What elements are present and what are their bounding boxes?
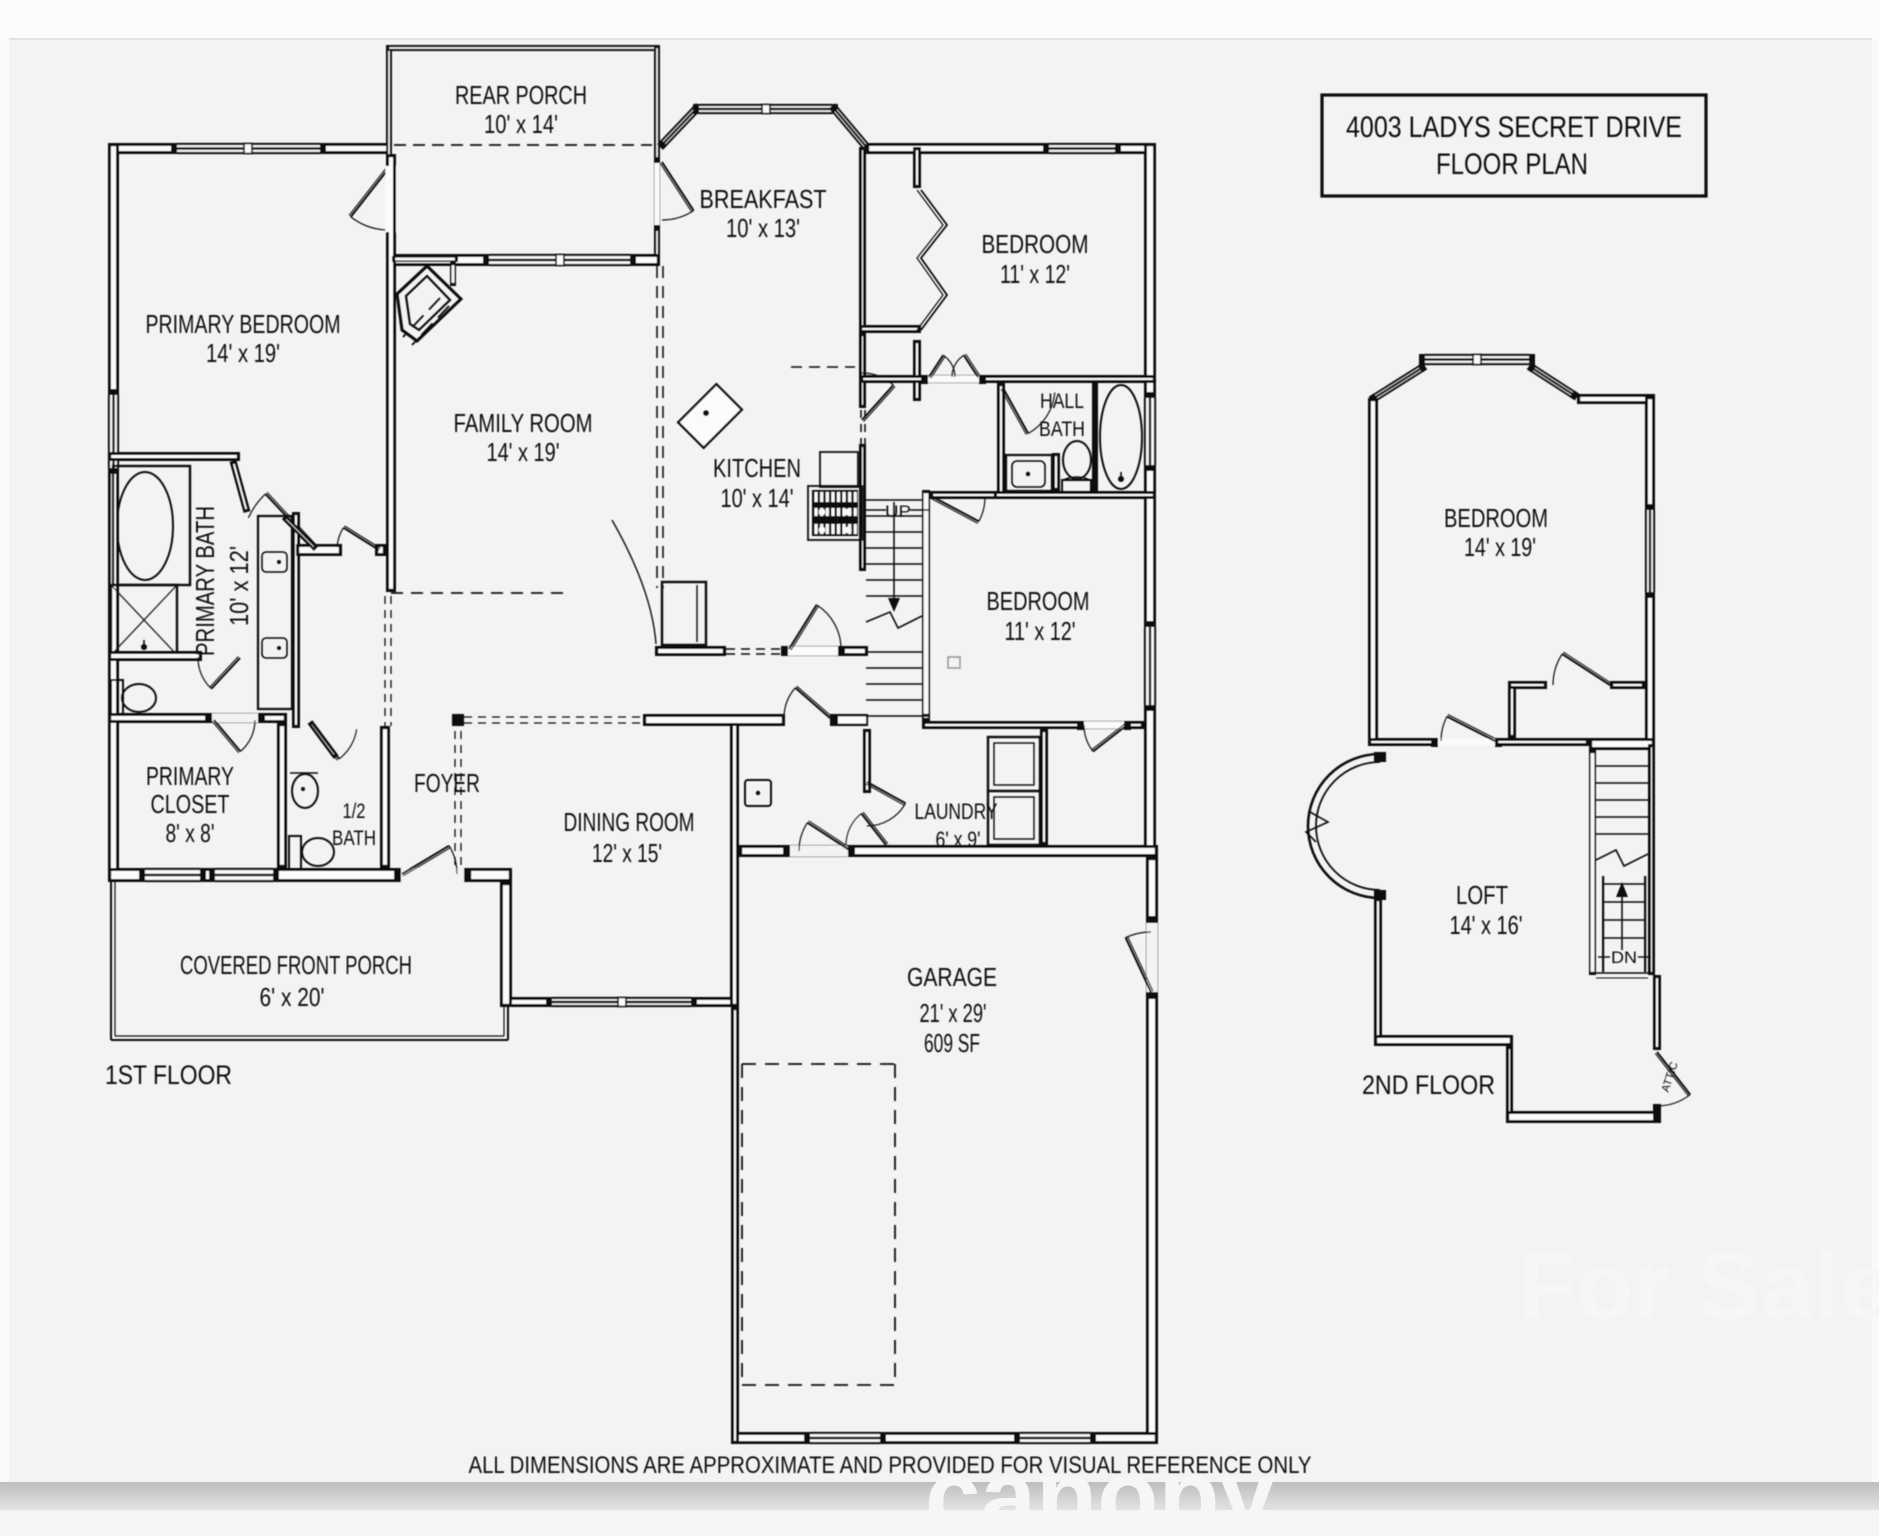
svg-text:BATH: BATH (1039, 418, 1085, 441)
svg-text:FAMILY ROOM: FAMILY ROOM (454, 408, 593, 438)
svg-text:10' x 14': 10' x 14' (721, 483, 794, 513)
svg-text:For Sale: For Sale (1518, 1233, 1879, 1339)
svg-text:CLOSET: CLOSET (151, 789, 230, 819)
svg-text:6' x 20': 6' x 20' (260, 982, 325, 1012)
svg-text:PRIMARY: PRIMARY (146, 761, 234, 791)
svg-text:BEDROOM: BEDROOM (982, 229, 1089, 259)
svg-text:609 SF: 609 SF (924, 1028, 980, 1058)
svg-text:1/2: 1/2 (343, 800, 366, 823)
svg-text:14' x 19': 14' x 19' (487, 437, 560, 467)
svg-text:PRIMARY BATH: PRIMARY BATH (190, 506, 220, 656)
svg-text:UP: UP (885, 502, 911, 521)
svg-text:10' x 12': 10' x 12' (224, 546, 254, 626)
svg-text:COVERED FRONT PORCH: COVERED FRONT PORCH (180, 950, 412, 980)
svg-text:DINING ROOM: DINING ROOM (564, 807, 695, 837)
svg-text:11' x 12': 11' x 12' (1005, 616, 1076, 646)
svg-text:4003 LADYS SECRET DRIVE: 4003 LADYS SECRET DRIVE (1346, 111, 1682, 144)
svg-text:10' x 13': 10' x 13' (726, 213, 800, 243)
svg-text:KITCHEN: KITCHEN (713, 453, 801, 483)
svg-text:11' x 12': 11' x 12' (1000, 259, 1070, 289)
svg-text:8' x 8': 8' x 8' (166, 818, 215, 848)
svg-text:14' x 16': 14' x 16' (1450, 910, 1523, 940)
svg-text:14' x 19': 14' x 19' (206, 338, 280, 368)
svg-text:DN: DN (1611, 948, 1637, 967)
svg-text:21' x 29': 21' x 29' (920, 998, 987, 1028)
svg-text:FLOOR PLAN: FLOOR PLAN (1436, 148, 1588, 181)
svg-text:HALL: HALL (1040, 390, 1084, 413)
svg-text:FOYER: FOYER (414, 768, 480, 798)
svg-text:BEDROOM: BEDROOM (1444, 503, 1548, 533)
svg-text:BREAKFAST: BREAKFAST (700, 184, 827, 214)
svg-text:14' x 19': 14' x 19' (1464, 532, 1536, 562)
svg-text:LOFT: LOFT (1456, 880, 1508, 910)
svg-text:6' x 9': 6' x 9' (936, 827, 981, 852)
svg-text:12' x 15': 12' x 15' (592, 838, 662, 868)
svg-text:10' x 14': 10' x 14' (484, 109, 558, 139)
svg-text:LAUNDRY: LAUNDRY (915, 799, 998, 824)
svg-text:2ND FLOOR: 2ND FLOOR (1362, 1070, 1495, 1100)
svg-text:REAR PORCH: REAR PORCH (455, 80, 587, 110)
svg-text:ALL DIMENSIONS ARE APPROXIMATE: ALL DIMENSIONS ARE APPROXIMATE AND PROVI… (469, 1452, 1312, 1479)
svg-text:BEDROOM: BEDROOM (987, 586, 1090, 616)
svg-text:PRIMARY BEDROOM: PRIMARY BEDROOM (146, 309, 341, 339)
svg-text:GARAGE: GARAGE (907, 962, 997, 992)
svg-text:BATH: BATH (332, 827, 376, 850)
svg-text:1ST FLOOR: 1ST FLOOR (105, 1060, 232, 1090)
